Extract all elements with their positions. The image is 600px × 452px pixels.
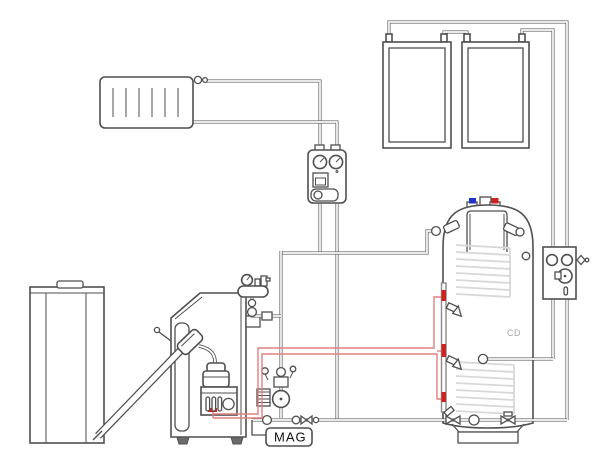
flue-outlet xyxy=(246,316,260,327)
solar-collector-2 xyxy=(462,42,529,148)
strip-port-mid xyxy=(442,344,447,357)
strip-port-hot xyxy=(442,290,447,301)
tank-bottom-port xyxy=(469,415,479,425)
thermometer-icon xyxy=(290,366,296,372)
buffer-tank: CD xyxy=(432,197,533,443)
tank-brand-label: CD xyxy=(507,328,521,338)
union-fitting xyxy=(263,416,272,425)
union-fitting xyxy=(292,416,300,424)
gauge-icon xyxy=(547,255,558,266)
gauge-icon xyxy=(562,255,573,266)
collector-stub xyxy=(441,34,447,42)
burner-vent xyxy=(206,397,210,411)
boiler-pump-group xyxy=(257,366,319,424)
radiator-valve-icon xyxy=(194,76,201,83)
mixing-valve-icon xyxy=(277,368,286,377)
burner-fan-icon xyxy=(223,398,234,409)
solar-pump-station xyxy=(543,247,589,299)
collector-stub xyxy=(464,34,470,42)
ball-valve-icon xyxy=(301,416,319,424)
boiler-charge-hot-pipes xyxy=(213,297,441,418)
schematic-page: CD xyxy=(0,0,600,452)
heating-pump-station xyxy=(308,145,346,203)
solar-collector-array xyxy=(383,34,529,148)
solar-collector-1 xyxy=(383,42,451,148)
boiler-foot xyxy=(231,437,243,444)
pipe-fitting xyxy=(262,312,272,320)
burner-vent xyxy=(218,397,222,411)
solar-coil-port xyxy=(478,354,487,363)
heating-system-diagram: CD xyxy=(0,0,600,452)
collector-stub xyxy=(519,34,525,42)
boiler-lever xyxy=(154,327,171,341)
thermometer-icon xyxy=(262,368,268,374)
expansion-vessel: MAG xyxy=(252,420,312,446)
collector-stub xyxy=(386,34,392,42)
burner-vent xyxy=(212,397,216,411)
pellet-hopper xyxy=(30,281,104,443)
safety-manifold xyxy=(238,286,268,297)
safety-valve-icon xyxy=(255,279,260,286)
boiler-foot xyxy=(177,437,189,444)
check-valve-icon xyxy=(577,256,589,265)
expansion-vessel-label: MAG xyxy=(274,430,307,445)
strip-port-low xyxy=(442,392,447,402)
cold-port-cap xyxy=(469,198,476,204)
hot-port-cap xyxy=(492,198,499,204)
radiator xyxy=(100,76,207,128)
hopper-lid xyxy=(57,281,83,288)
